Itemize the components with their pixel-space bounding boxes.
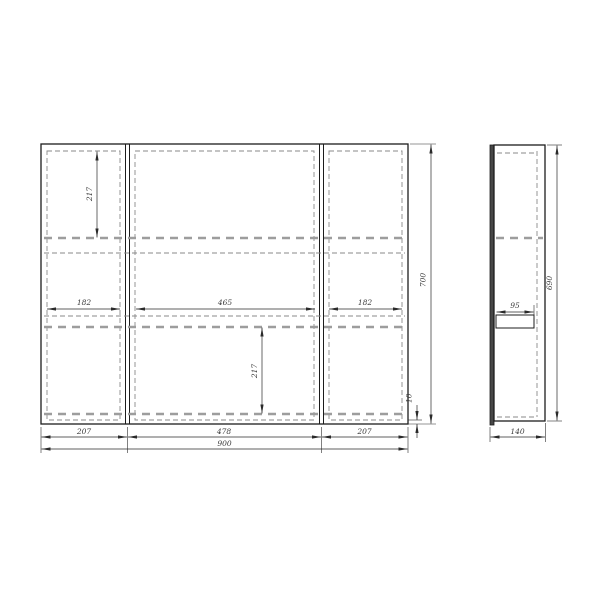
dim-label-front-right-door: 207 xyxy=(356,427,372,436)
dim-side-total-depth: 140 xyxy=(490,423,546,442)
dim-front-total-height: 700 xyxy=(410,144,436,424)
dim-label-front-center-shelf: 465 xyxy=(217,298,233,307)
front-cabinet-outline xyxy=(41,144,408,424)
dim-label-side-total-depth: 140 xyxy=(510,427,525,436)
dim-label-front-bottom-section: 217 xyxy=(250,364,259,380)
dim-front-left-shelf: 182 xyxy=(47,298,120,309)
dim-front-top-section: 217 xyxy=(85,152,97,238)
dim-label-front-left-shelf: 182 xyxy=(77,298,92,307)
dim-label-front-bottom-gap: 10 xyxy=(405,393,414,403)
dim-label-front-total-height: 700 xyxy=(419,273,428,288)
dim-label-front-top-section: 217 xyxy=(85,187,94,203)
dim-front-bottom-section: 217 xyxy=(250,328,262,414)
dim-label-front-center-door: 478 xyxy=(216,427,232,436)
dim-label-front-total-width: 900 xyxy=(217,439,232,448)
dim-label-front-right-shelf: 182 xyxy=(358,298,373,307)
dim-label-front-left-door: 207 xyxy=(76,427,92,436)
side-view: 95 690 140 xyxy=(490,145,562,442)
right-door-hidden-outline xyxy=(329,151,402,420)
technical-drawing: 217 182 465 182 217 10 xyxy=(0,0,600,600)
dim-label-side-shelf-depth: 95 xyxy=(510,301,520,310)
dim-front-right-shelf: 182 xyxy=(329,298,402,309)
left-door-hidden-outline xyxy=(47,151,120,420)
dim-side-body-height: 690 xyxy=(545,145,562,421)
center-door-hidden-outline xyxy=(135,151,314,420)
drawing-canvas: 217 182 465 182 217 10 xyxy=(0,0,600,600)
dim-front-center-shelf: 465 xyxy=(136,298,315,309)
front-view: 217 182 465 182 217 10 xyxy=(41,144,436,453)
side-shelf-section xyxy=(496,315,534,328)
dim-label-side-body-height: 690 xyxy=(545,276,554,291)
dim-front-bottom-rows: 207 478 207 900 xyxy=(41,427,408,453)
